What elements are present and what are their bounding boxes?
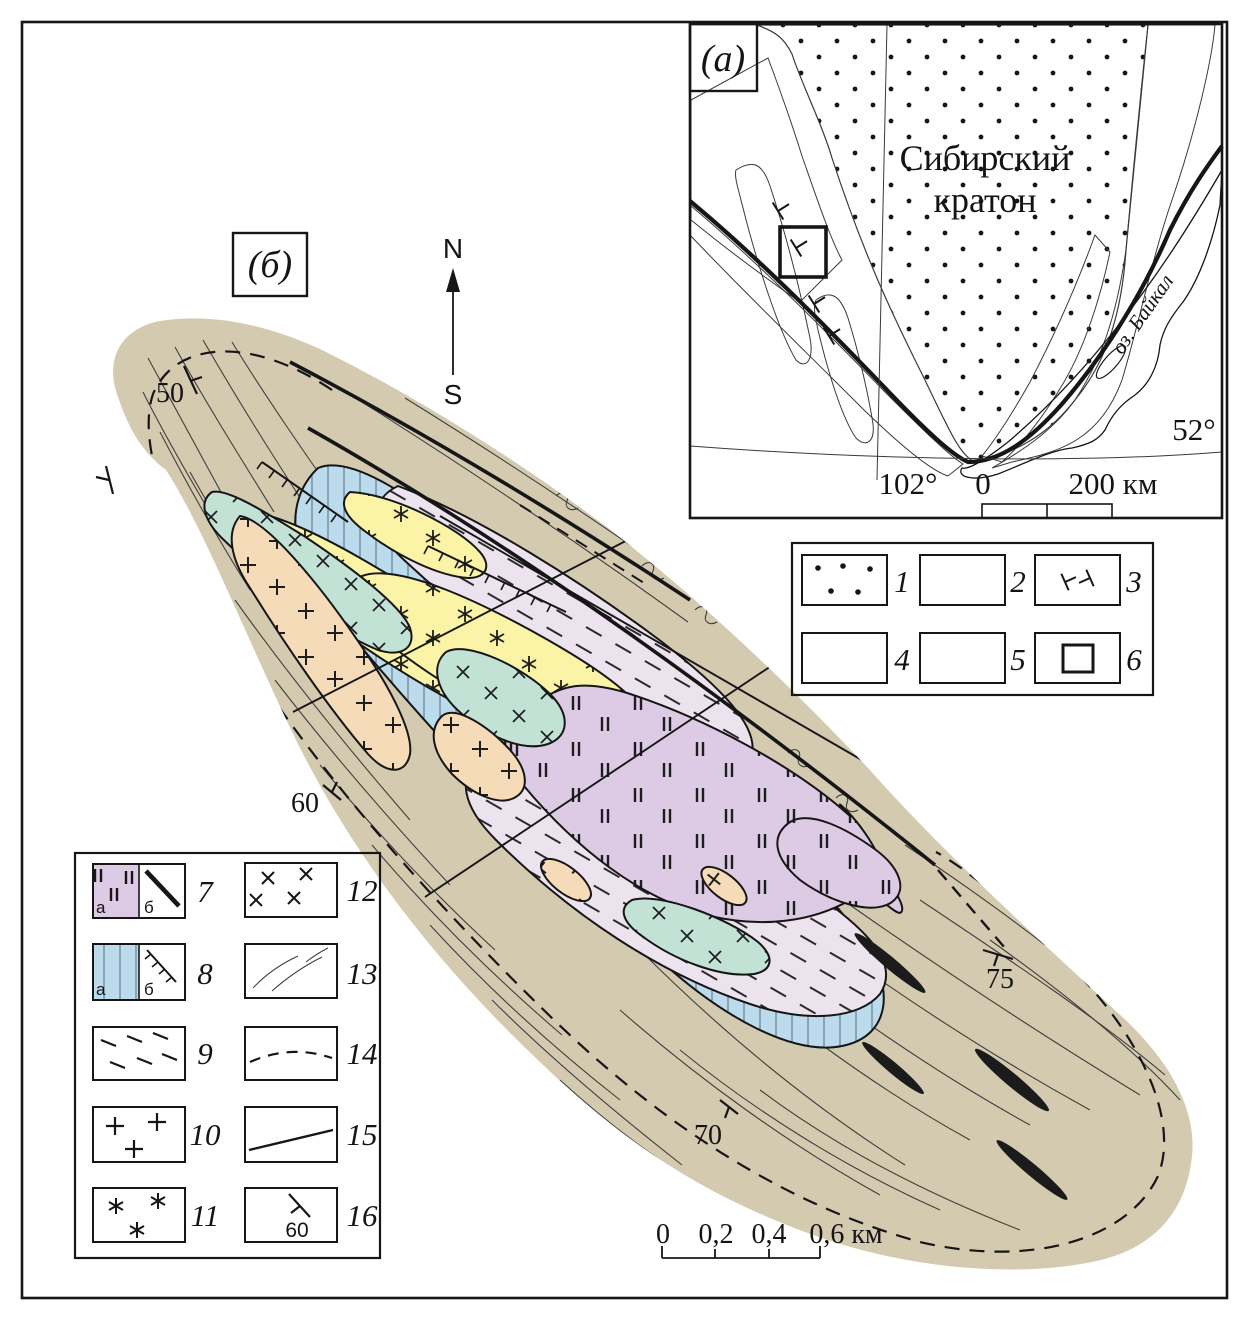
legend-5-num: 5 xyxy=(1010,642,1026,677)
legend-8-sub-a: а xyxy=(96,980,106,999)
legend-13-num: 13 xyxy=(347,956,378,991)
scalebar-b-tick-1: 0,2 xyxy=(699,1219,734,1250)
legend-1-num: 1 xyxy=(894,564,910,599)
legend-7-sub-a: а xyxy=(96,898,106,917)
dip-label-70: 70 xyxy=(694,1120,722,1151)
dip-label-50: 50 xyxy=(156,378,184,409)
panel-a-label: (а) xyxy=(701,38,745,80)
legend-7-num: 7 xyxy=(197,874,214,909)
scalebar-b-tick-2: 0,4 xyxy=(752,1219,787,1250)
legend-3-num: 3 xyxy=(1125,564,1142,599)
legend-7-sub-b: б xyxy=(144,898,154,917)
legend-15-num: 15 xyxy=(347,1117,378,1152)
legend-16-num: 16 xyxy=(347,1198,379,1233)
legend-12-num: 12 xyxy=(347,873,378,908)
figure-page: 50 60 70 75 N S (б) 0 0,2 0,4 0,6 км xyxy=(0,0,1248,1319)
scalebar-a-end: 200 км xyxy=(1069,466,1158,501)
scalebar-b-tick-0: 0 xyxy=(656,1219,670,1250)
legend-14-num: 14 xyxy=(347,1036,378,1071)
dip-label-60: 60 xyxy=(291,788,319,819)
legend-10-num: 10 xyxy=(190,1117,222,1152)
compass-north-label: N xyxy=(443,233,463,264)
legend-6-num: 6 xyxy=(1126,642,1142,677)
legend-8-num: 8 xyxy=(197,956,213,991)
panel-a-inset: Сибирский кратон оз. Байкал 52° 102° 0 2… xyxy=(690,24,1222,518)
dip-label-75: 75 xyxy=(986,964,1014,995)
legend-9-num: 9 xyxy=(197,1036,213,1071)
legend-4-num: 4 xyxy=(894,642,910,677)
geologic-figure: 50 60 70 75 N S (б) 0 0,2 0,4 0,6 км xyxy=(0,0,1248,1319)
scalebar-a-zero: 0 xyxy=(975,466,991,501)
scalebar-b-tick-3: 0,6 км xyxy=(809,1219,883,1250)
legend-11-num: 11 xyxy=(191,1198,220,1233)
legend-16-dip-value: 60 xyxy=(285,1219,308,1242)
longitude-label: 102° xyxy=(879,466,938,501)
craton-name-line2: кратон xyxy=(933,180,1036,220)
panel-b-label: (б) xyxy=(248,244,292,286)
legend-8-sub-b: б xyxy=(144,980,154,999)
legend-2-num: 2 xyxy=(1010,564,1026,599)
craton-name-line1: Сибирский xyxy=(900,138,1071,178)
compass-south-label: S xyxy=(444,379,463,410)
latitude-label: 52° xyxy=(1172,412,1215,447)
